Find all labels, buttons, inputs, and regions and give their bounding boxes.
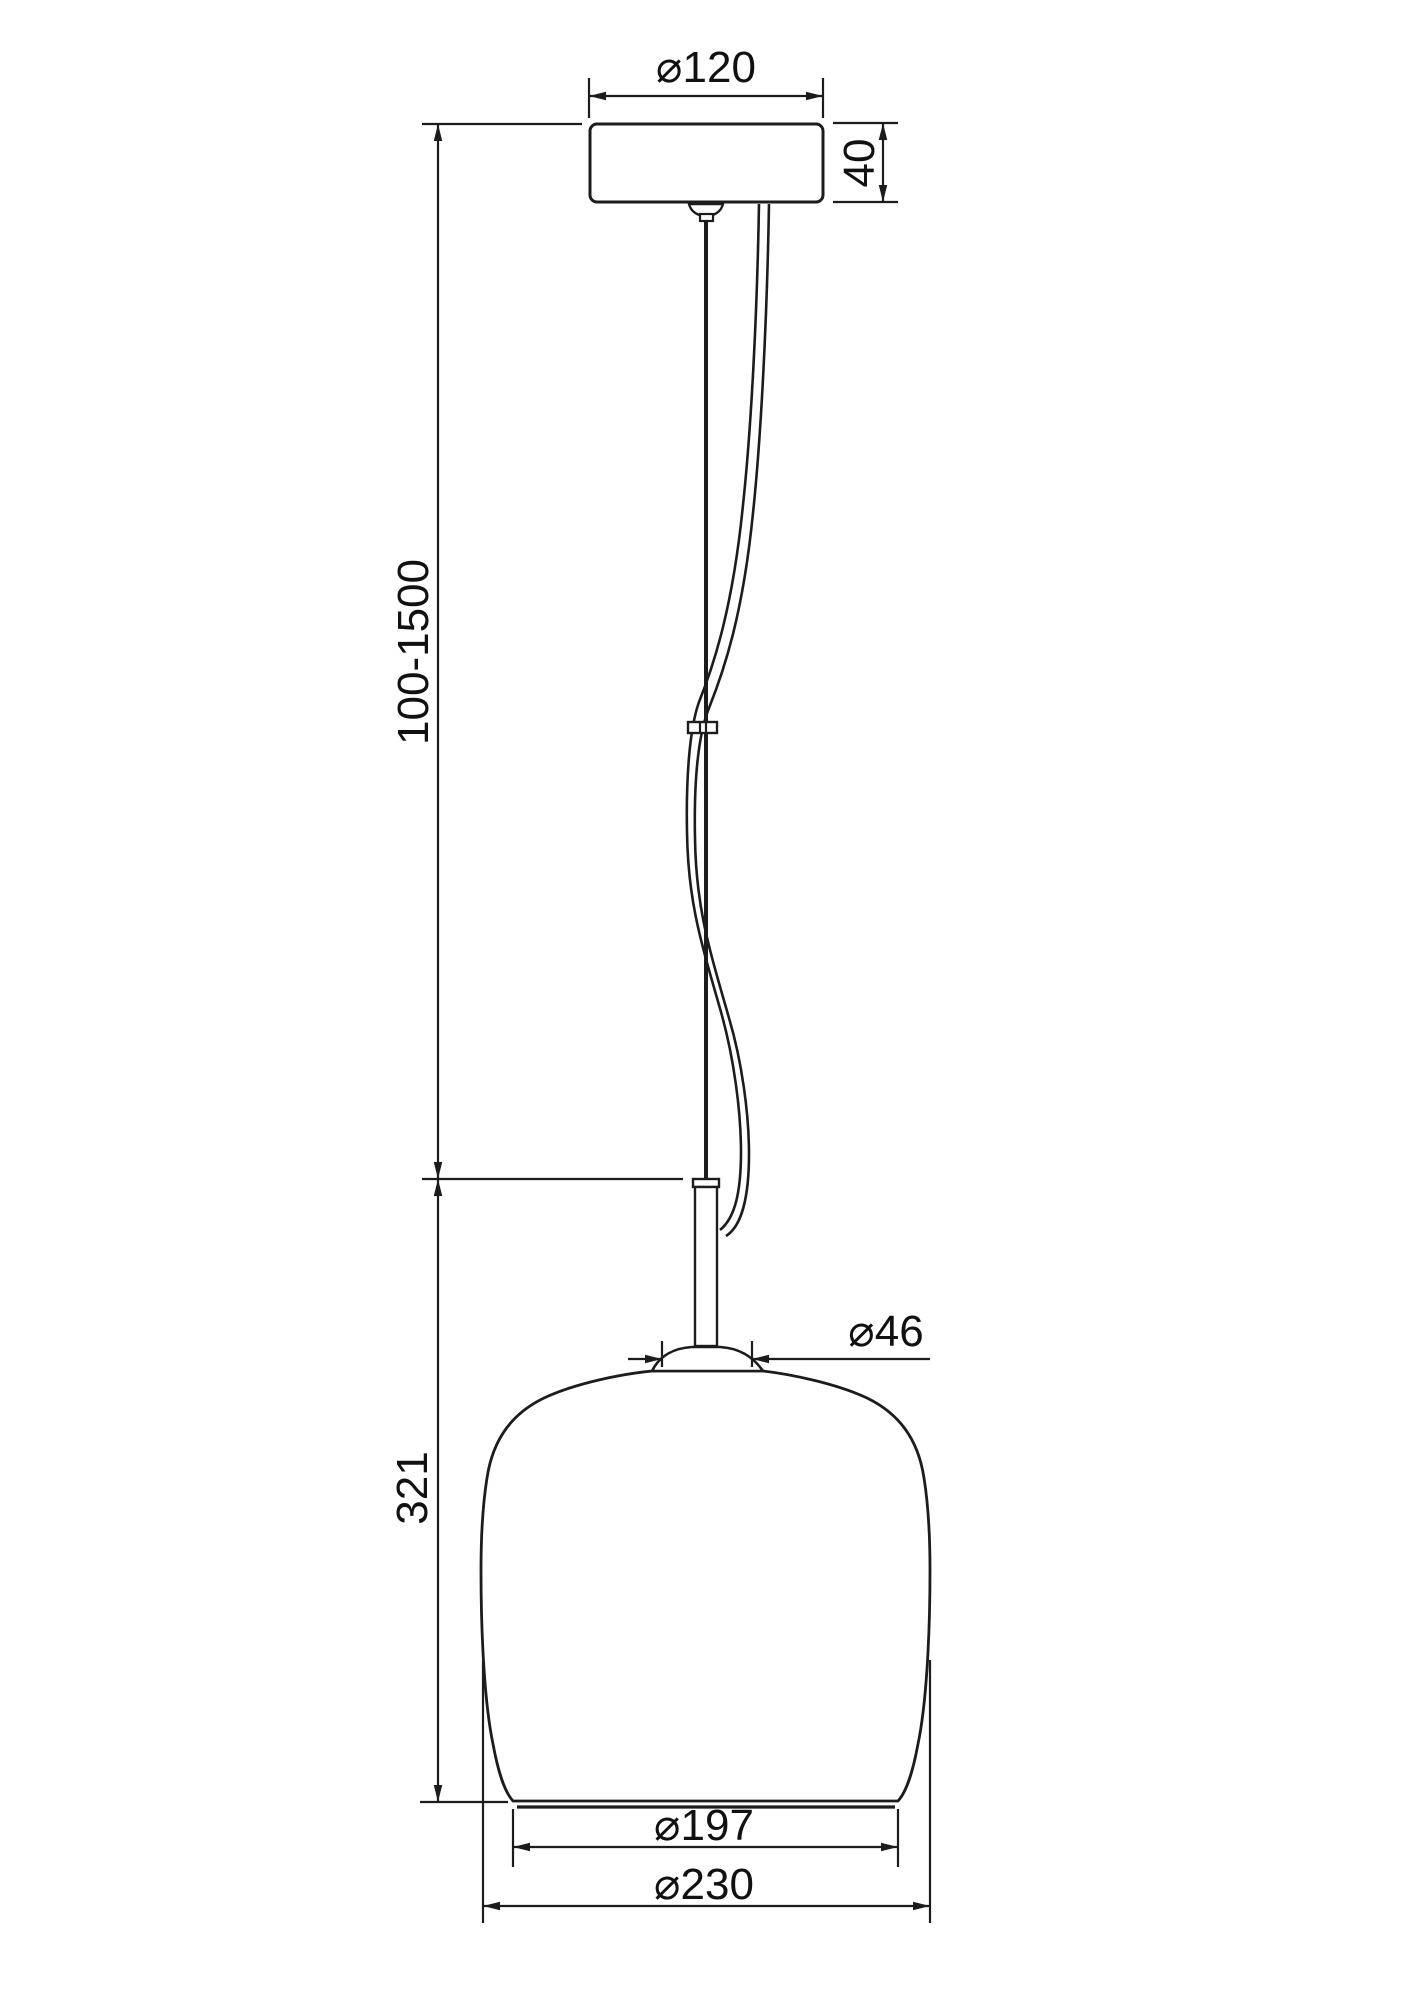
shade-opening-diameter-label: ⌀197 bbox=[654, 1801, 754, 1850]
suspension-height-label: 100-1500 bbox=[389, 559, 438, 745]
shade-height-label: 321 bbox=[388, 1451, 437, 1524]
canopy-height-label: 40 bbox=[835, 139, 884, 188]
shade-neck-dome bbox=[652, 1347, 763, 1371]
cord-clip-body bbox=[688, 722, 717, 733]
neck-diameter-label: ⌀46 bbox=[848, 1307, 923, 1356]
canopy-diameter-label: ⌀120 bbox=[656, 43, 756, 92]
canopy-cord-grip-nut bbox=[700, 214, 713, 221]
cord-clip bbox=[688, 722, 717, 733]
dim-canopy-height: 40 bbox=[833, 123, 898, 202]
drawing-sheet: ⌀120 40 100-1500 321 ⌀46 ⌀197 bbox=[0, 0, 1413, 2000]
stem bbox=[693, 1179, 719, 1346]
dim-canopy-diameter: ⌀120 bbox=[589, 43, 823, 118]
shade-outline bbox=[481, 1371, 930, 1801]
stem-tube bbox=[695, 1187, 717, 1346]
dim-shade-opening-diameter: ⌀197 bbox=[513, 1801, 898, 1867]
lamp-shade bbox=[481, 1371, 930, 1807]
power-cord bbox=[687, 204, 769, 1236]
canopy-outline bbox=[590, 124, 823, 202]
power-cord-line-left bbox=[687, 204, 759, 1230]
dim-suspension-height: 100-1500 bbox=[389, 124, 683, 1179]
shade-max-diameter-label: ⌀230 bbox=[654, 1860, 754, 1909]
pendant-lamp-dimension-drawing: ⌀120 40 100-1500 321 ⌀46 ⌀197 bbox=[0, 0, 1413, 2000]
ceiling-canopy bbox=[590, 124, 823, 221]
